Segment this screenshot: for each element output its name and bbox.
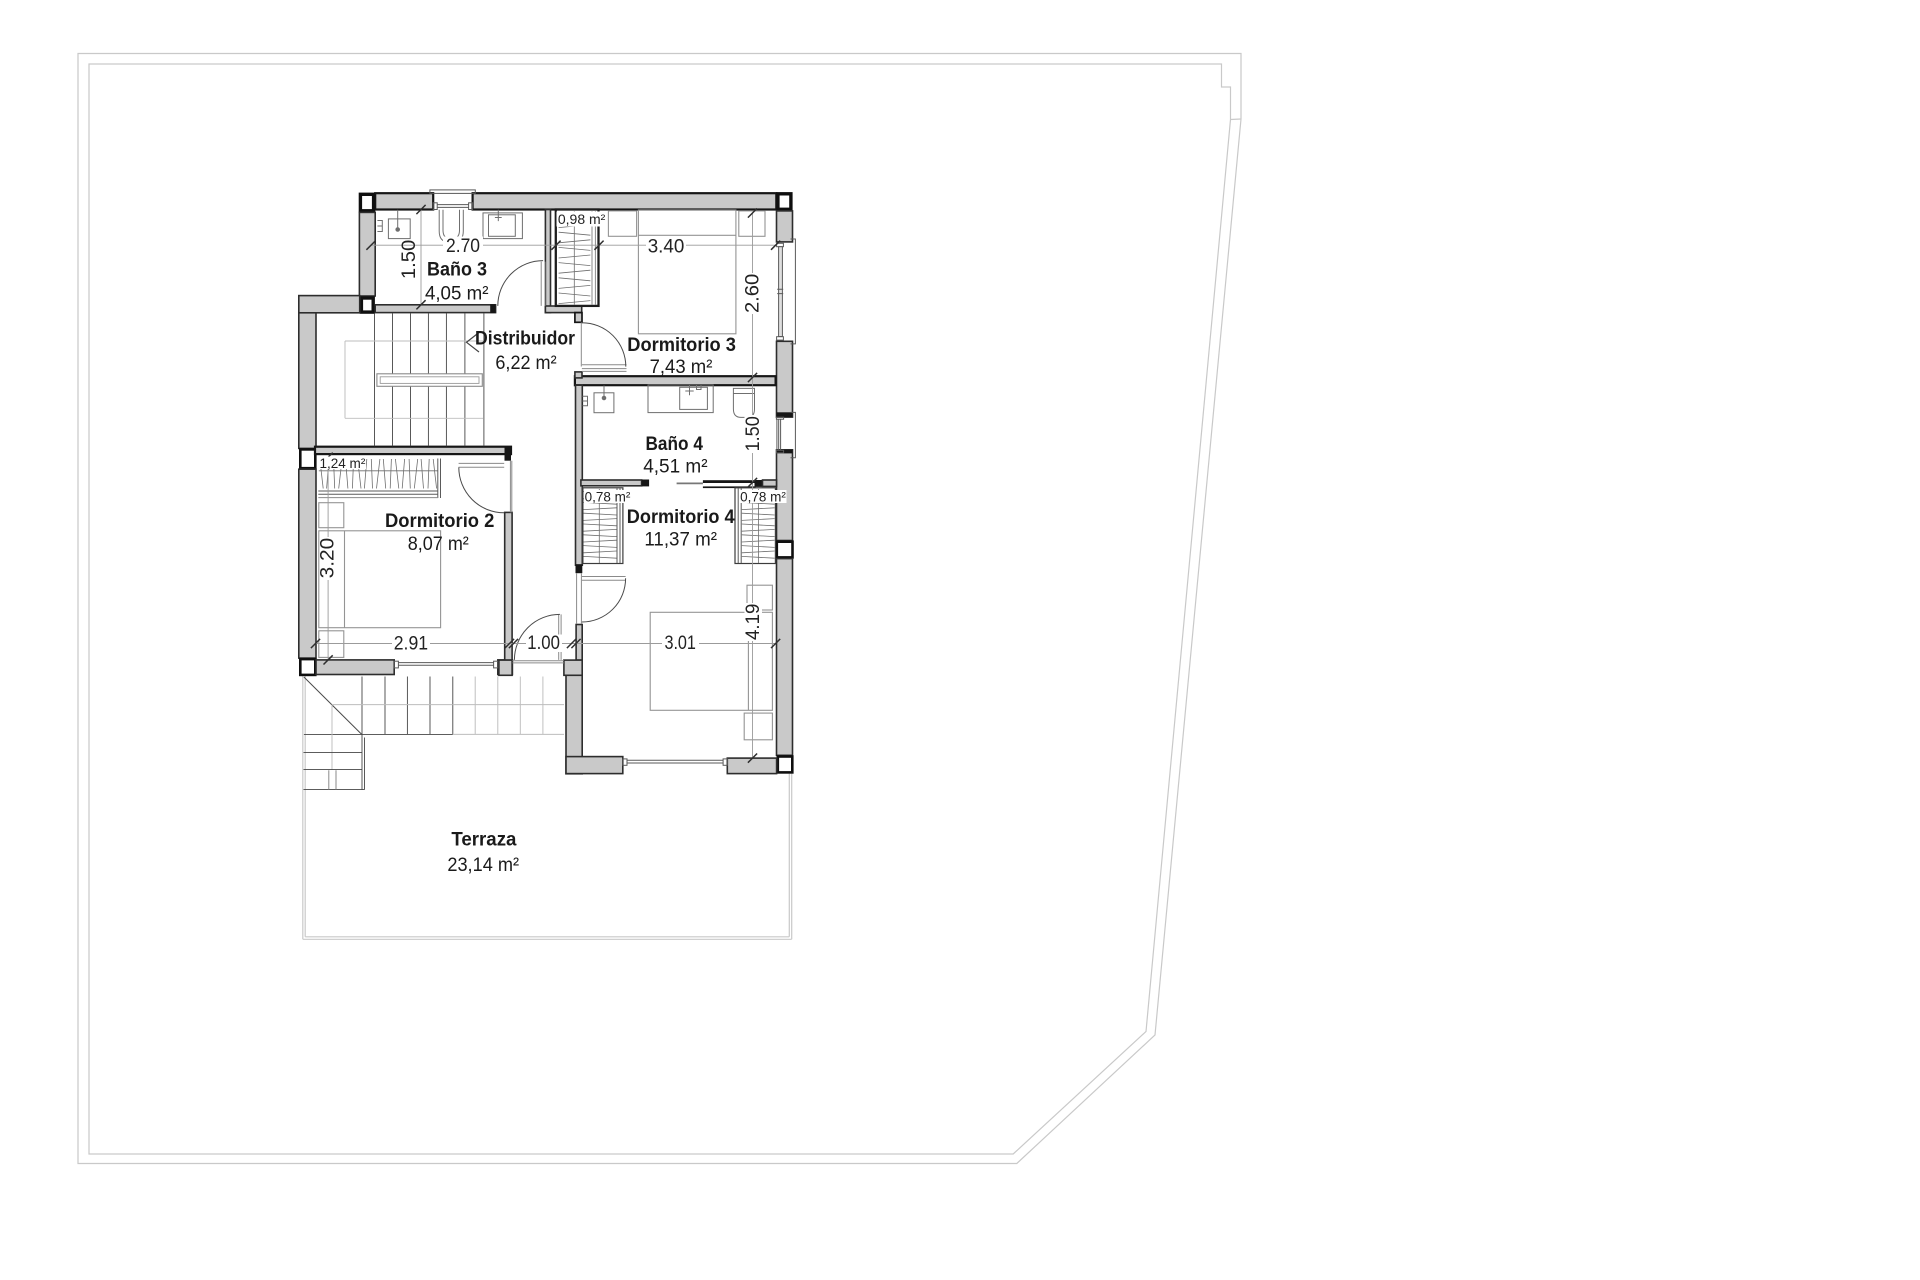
- svg-text:1,24 m²: 1,24 m²: [319, 455, 365, 471]
- svg-text:3.40: 3.40: [648, 236, 685, 257]
- svg-text:1.00: 1.00: [527, 633, 560, 654]
- svg-text:0,78 m²: 0,78 m²: [585, 489, 631, 505]
- svg-text:11,37 m²: 11,37 m²: [644, 529, 717, 551]
- svg-text:4.19: 4.19: [743, 604, 764, 640]
- svg-text:1.50: 1.50: [399, 240, 420, 279]
- svg-text:2.70: 2.70: [446, 236, 480, 257]
- svg-text:8,07 m²: 8,07 m²: [408, 533, 469, 555]
- svg-text:Baño 4: Baño 4: [646, 433, 704, 455]
- svg-text:3.20: 3.20: [318, 538, 339, 579]
- svg-text:Baño 3: Baño 3: [427, 259, 487, 281]
- svg-text:Dormitorio 3: Dormitorio 3: [627, 334, 736, 356]
- svg-text:3.01: 3.01: [664, 633, 696, 654]
- svg-text:Dormitorio 4: Dormitorio 4: [627, 506, 735, 528]
- svg-text:2.91: 2.91: [394, 634, 428, 655]
- svg-text:1.50: 1.50: [743, 416, 764, 451]
- svg-text:4,05 m²: 4,05 m²: [425, 283, 489, 305]
- svg-text:4,51 m²: 4,51 m²: [643, 455, 708, 477]
- svg-text:7,43 m²: 7,43 m²: [650, 356, 713, 378]
- svg-text:2.60: 2.60: [742, 274, 763, 313]
- svg-text:23,14 m²: 23,14 m²: [447, 854, 519, 876]
- svg-text:0,78 m²: 0,78 m²: [740, 489, 786, 505]
- svg-text:Distribuidor: Distribuidor: [475, 327, 575, 349]
- svg-text:Terraza: Terraza: [451, 829, 516, 851]
- svg-text:Dormitorio 2: Dormitorio 2: [385, 510, 495, 532]
- svg-text:0,98 m²: 0,98 m²: [558, 211, 606, 227]
- svg-text:6,22 m²: 6,22 m²: [495, 352, 557, 374]
